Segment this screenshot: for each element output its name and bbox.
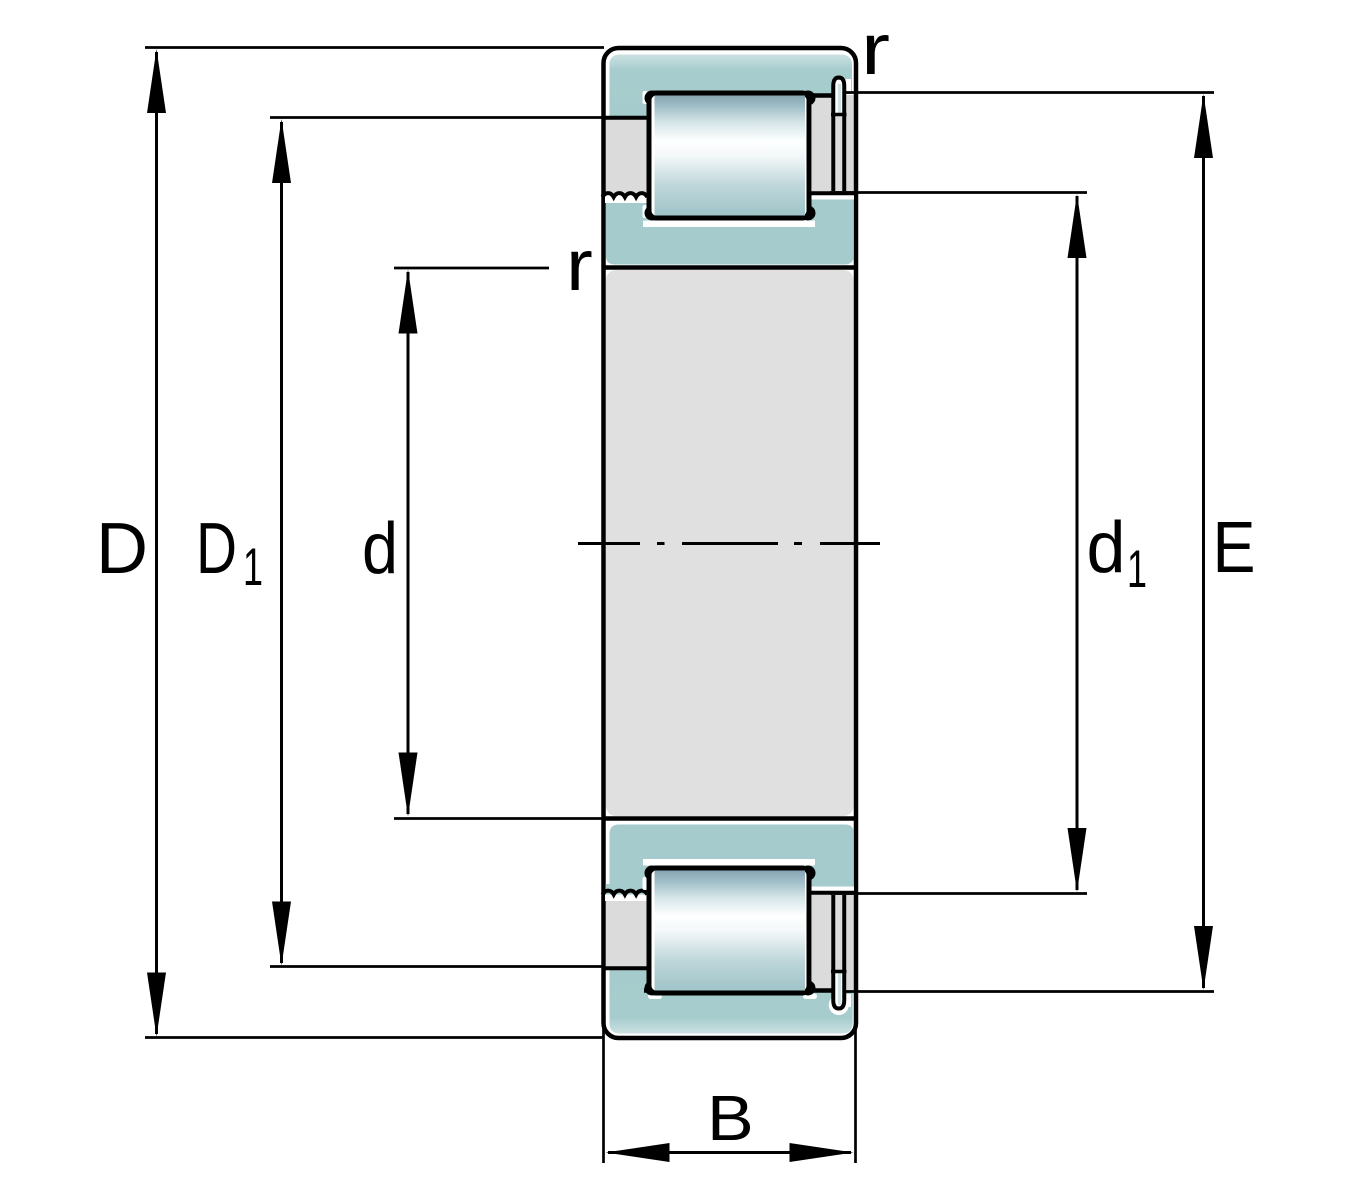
svg-text:B: B (707, 1082, 754, 1154)
svg-text:r: r (566, 226, 593, 306)
svg-text:D: D (96, 509, 148, 589)
svg-text:d: d (362, 509, 398, 589)
svg-text:r: r (861, 10, 890, 90)
svg-text:D: D (196, 509, 237, 589)
svg-text:1: 1 (243, 538, 263, 597)
svg-text:d: d (1087, 508, 1126, 588)
svg-text:E: E (1213, 508, 1256, 588)
svg-text:1: 1 (1127, 540, 1147, 599)
